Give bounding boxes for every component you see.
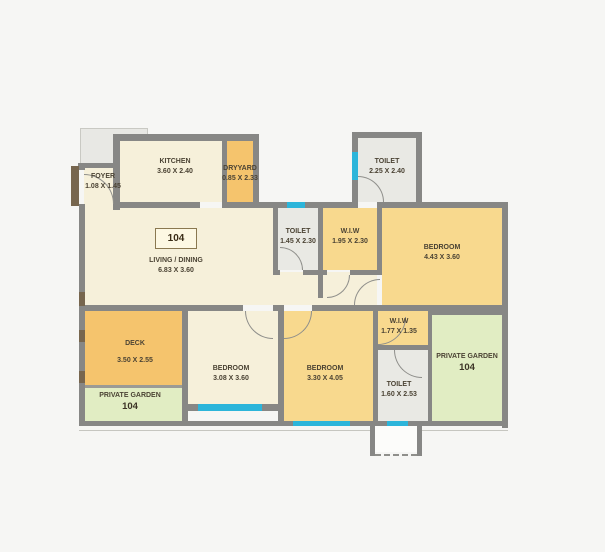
toilet-top-label: TOILET 2.25 X 2.40: [357, 157, 417, 177]
wall: [382, 202, 508, 208]
wall: [303, 270, 327, 275]
ground-line: [422, 430, 508, 431]
wall: [79, 204, 85, 425]
wall: [79, 163, 85, 170]
toilet-bottom-dims: 1.60 X 2.53: [370, 390, 428, 400]
wall: [318, 275, 323, 298]
foyer-label: FOYER 1.08 X 1.45: [78, 172, 128, 192]
dryyard-dims: 0.85 X 2.33: [217, 174, 263, 184]
toilet-mid-label: TOILET 1.45 X 2.30: [274, 227, 322, 247]
wall: [113, 134, 259, 141]
dryyard-name: DRYYARD: [217, 164, 263, 174]
deck-label: DECK 3.50 X 2.55: [100, 339, 170, 366]
kitchen-name: KITCHEN: [138, 157, 212, 167]
living-dining-dims: 6.83 X 3.60: [134, 266, 218, 276]
toilet-mid-name: TOILET: [274, 227, 322, 237]
wall: [432, 311, 502, 315]
garden-right-unit: 104: [430, 362, 504, 373]
wall: [79, 305, 243, 311]
wall: [352, 132, 422, 138]
deck-name: DECK: [100, 339, 170, 349]
wiw-mid-label: W.I.W 1.95 X 2.30: [324, 227, 376, 247]
bedroom-bm-dims: 3.30 X 4.05: [288, 374, 362, 384]
garden-left-label: PRIVATE GARDEN 104: [88, 391, 172, 412]
kitchen-dims: 3.60 X 2.40: [138, 167, 212, 177]
toilet-mid-dims: 1.45 X 2.30: [274, 237, 322, 247]
floor-plan-unit-104: 104 FOYER 1.08 X 1.45 KITCHEN 3.60 X 2.4…: [0, 0, 605, 552]
toilet-bottom-label: TOILET 1.60 X 2.53: [370, 380, 428, 400]
bedroom-bm-name: BEDROOM: [288, 364, 362, 374]
duct-floor: [375, 426, 417, 452]
bedroom-right-name: BEDROOM: [403, 243, 481, 253]
wiw-mid-name: W.I.W: [324, 227, 376, 237]
wiw-small-label: W.I.W 1.77 X 1.35: [370, 317, 428, 337]
deck-window-jamb: [79, 371, 85, 383]
foyer-dims: 1.08 X 1.45: [78, 182, 128, 192]
unit-number-box: 104: [155, 228, 197, 249]
wiw-mid-dims: 1.95 X 2.30: [324, 237, 376, 247]
wall: [408, 421, 502, 426]
wall: [352, 202, 358, 208]
duct-open-dashed-edge: [375, 450, 417, 456]
garden-right-label: PRIVATE GARDEN 104: [430, 352, 504, 373]
wall: [305, 202, 357, 208]
wiw-small-dims: 1.77 X 1.35: [370, 327, 428, 337]
window-bedroom-bm: [293, 421, 350, 426]
wall: [377, 202, 382, 275]
bedroom-right-dims: 4.43 X 3.60: [403, 253, 481, 263]
living-dining-name: LIVING / DINING: [134, 256, 218, 266]
deck-dims: 3.50 X 2.55: [100, 356, 170, 366]
wall: [79, 421, 293, 426]
toilet-top-name: TOILET: [357, 157, 417, 167]
window-toilet-mid: [287, 202, 305, 208]
garden-left-name: PRIVATE GARDEN: [88, 391, 172, 401]
deck-garden-divider: [85, 385, 182, 388]
garden-right-name: PRIVATE GARDEN: [430, 352, 504, 362]
wall: [350, 270, 377, 275]
wall: [502, 202, 508, 428]
bedroom-bl-label: BEDROOM 3.08 X 3.60: [194, 364, 268, 384]
living-dining-label: LIVING / DINING 6.83 X 3.60: [134, 256, 218, 276]
bedroom-bl-dims: 3.08 X 3.60: [194, 374, 268, 384]
window-bedroom-bl: [198, 404, 262, 411]
wiw-small-name: W.I.W: [370, 317, 428, 327]
bedroom-bl-name: BEDROOM: [194, 364, 268, 374]
toilet-top-dims: 2.25 X 2.40: [357, 167, 417, 177]
garden-left-unit: 104: [88, 401, 172, 412]
bedroom-bm-label: BEDROOM 3.30 X 4.05: [288, 364, 362, 384]
wall: [113, 202, 200, 208]
dryyard-label: DRYYARD 0.85 X 2.33: [217, 164, 263, 184]
window-duct: [387, 421, 408, 426]
kitchen-label: KITCHEN 3.60 X 2.40: [138, 157, 212, 177]
deck-window-jamb: [79, 330, 85, 342]
deck-door-jamb: [79, 292, 85, 306]
wall: [350, 421, 387, 426]
ground-line: [79, 430, 370, 431]
wall: [273, 270, 280, 275]
toilet-bottom-name: TOILET: [370, 380, 428, 390]
foyer-name: FOYER: [78, 172, 128, 182]
bedroom-right-label: BEDROOM 4.43 X 3.60: [403, 243, 481, 263]
